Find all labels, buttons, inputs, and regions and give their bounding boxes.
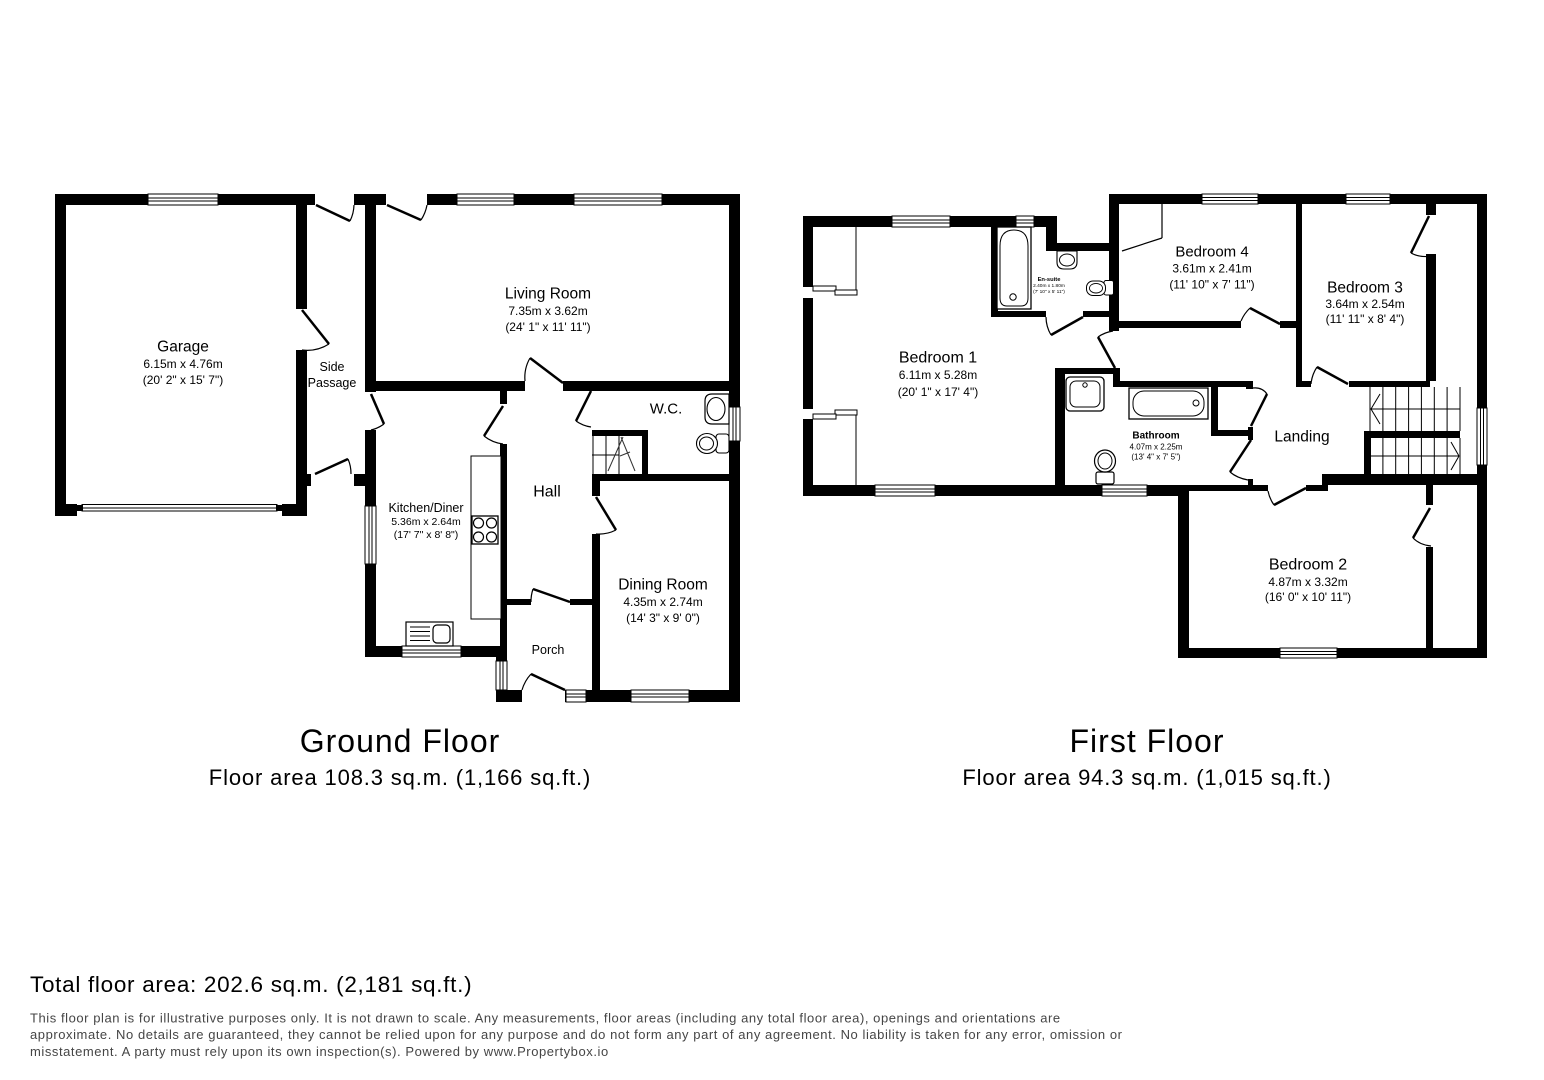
svg-text:Total floor area: 202.6 sq.m.: Total floor area: 202.6 sq.m. (2,181 sq.… [30, 972, 472, 997]
svg-text:6.15m x 4.76m: 6.15m x 4.76m [143, 357, 222, 371]
svg-text:(11' 11" x 8' 4"): (11' 11" x 8' 4") [1326, 312, 1405, 326]
svg-text:(14' 3" x 9' 0"): (14' 3" x 9' 0") [626, 611, 700, 625]
svg-text:Bedroom 4: Bedroom 4 [1175, 244, 1248, 261]
svg-text:(17' 7" x 8' 8"): (17' 7" x 8' 8") [394, 529, 459, 541]
svg-text:(20' 1" x 17' 4"): (20' 1" x 17' 4") [898, 385, 978, 399]
svg-text:approximate. No details are gu: approximate. No details are guaranteed, … [30, 1027, 1123, 1042]
svg-text:First Floor: First Floor [1070, 723, 1225, 759]
svg-text:En-suite: En-suite [1038, 277, 1062, 283]
svg-text:(20' 2" x 15' 7"): (20' 2" x 15' 7") [143, 373, 223, 387]
svg-text:Garage: Garage [157, 339, 209, 356]
svg-text:(7' 10" x 5' 11"): (7' 10" x 5' 11") [1033, 289, 1065, 295]
svg-text:(13' 4" x 7' 5"): (13' 4" x 7' 5") [1131, 453, 1181, 462]
svg-text:3.64m x 2.54m: 3.64m x 2.54m [1325, 297, 1404, 311]
svg-text:misstatement. A party must rel: misstatement. A party must rely upon its… [30, 1044, 609, 1059]
svg-text:Bedroom 2: Bedroom 2 [1269, 557, 1347, 574]
svg-text:Dining Room: Dining Room [618, 577, 708, 594]
svg-text:4.35m x 2.74m: 4.35m x 2.74m [623, 595, 702, 609]
svg-text:Porch: Porch [532, 643, 565, 657]
svg-text:(24' 1" x 11' 11"): (24' 1" x 11' 11") [505, 320, 590, 334]
svg-text:Living Room: Living Room [505, 286, 591, 303]
svg-text:6.11m x 5.28m: 6.11m x 5.28m [899, 368, 977, 382]
svg-text:Floor area 94.3 sq.m. (1,015 s: Floor area 94.3 sq.m. (1,015 sq.ft.) [962, 765, 1331, 790]
svg-text:Kitchen/Diner: Kitchen/Diner [388, 501, 463, 515]
svg-text:(11' 10" x 7' 11"): (11' 10" x 7' 11") [1169, 278, 1254, 292]
svg-text:Passage: Passage [308, 376, 357, 390]
svg-text:Hall: Hall [533, 484, 561, 501]
svg-text:5.36m x 2.64m: 5.36m x 2.64m [391, 516, 461, 528]
svg-text:(16' 0" x 10' 11"): (16' 0" x 10' 11") [1265, 590, 1351, 604]
svg-text:3.61m x 2.41m: 3.61m x 2.41m [1172, 262, 1251, 276]
svg-text:Bedroom 1: Bedroom 1 [899, 350, 977, 367]
svg-text:W.C.: W.C. [650, 401, 683, 418]
svg-text:2.40m x 1.80m: 2.40m x 1.80m [1033, 283, 1065, 289]
svg-text:Landing: Landing [1274, 429, 1329, 446]
svg-text:Bedroom 3: Bedroom 3 [1327, 280, 1403, 297]
svg-text:Floor area 108.3 sq.m. (1,166: Floor area 108.3 sq.m. (1,166 sq.ft.) [209, 765, 591, 790]
svg-text:4.07m x 2.25m: 4.07m x 2.25m [1130, 443, 1183, 452]
svg-text:Side: Side [319, 360, 344, 374]
svg-text:4.87m x 3.32m: 4.87m x 3.32m [1268, 575, 1347, 589]
svg-text:Bathroom: Bathroom [1132, 431, 1179, 442]
svg-text:Ground Floor: Ground Floor [300, 723, 501, 759]
svg-text:This floor plan is for illustr: This floor plan is for illustrative purp… [30, 1011, 1061, 1026]
svg-text:7.35m x 3.62m: 7.35m x 3.62m [508, 304, 587, 318]
